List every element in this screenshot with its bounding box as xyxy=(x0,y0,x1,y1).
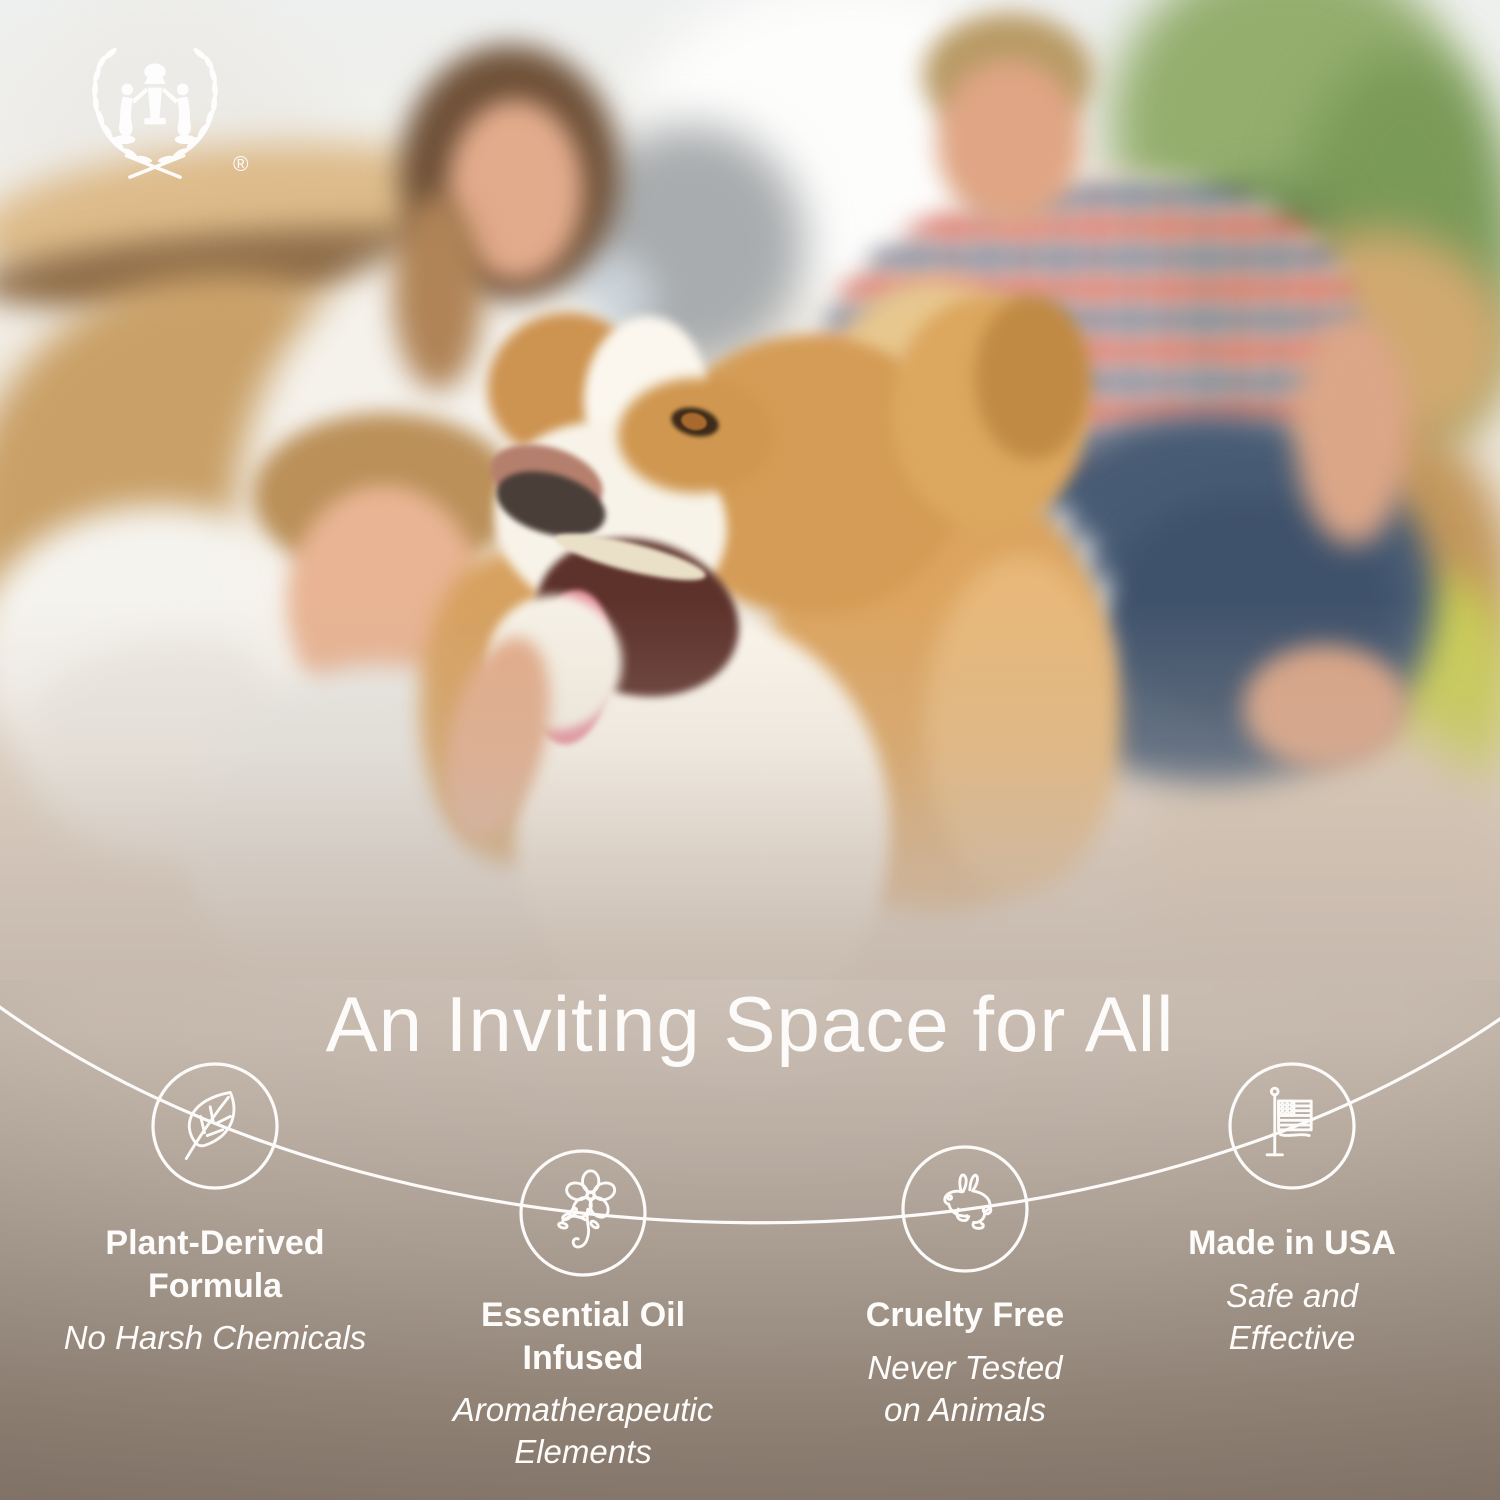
feature-subtitle: No Harsh Chemicals xyxy=(45,1317,385,1359)
mother-ponytail xyxy=(393,195,483,390)
feature-made-in-usa: Made in USA Safe and Effective xyxy=(1152,1222,1432,1359)
flower-icon xyxy=(537,1167,629,1259)
feature-subtitle: Never Tested on Animals xyxy=(850,1347,1080,1431)
rabbit-icon xyxy=(919,1163,1011,1255)
feature-cruelty-free: Cruelty Free Never Tested on Animals xyxy=(825,1294,1105,1431)
feature-subtitle: Safe and Effective xyxy=(1207,1275,1377,1359)
feature-title: Essential Oil Infused xyxy=(449,1294,717,1379)
headline: An Inviting Space for All xyxy=(0,985,1500,1063)
us-flag-icon xyxy=(1246,1080,1338,1172)
father-face xyxy=(937,60,1082,225)
feature-title: Cruelty Free xyxy=(825,1294,1105,1337)
dog-ear-tip xyxy=(975,295,1090,460)
leaf-icon xyxy=(169,1080,261,1172)
laurel-wreath-icon xyxy=(55,25,255,195)
feature-subtitle: Aromatherapeutic Elements xyxy=(433,1389,733,1473)
brand-logo: ® xyxy=(55,25,265,205)
father-arm xyxy=(1295,315,1410,545)
registered-trademark: ® xyxy=(233,153,248,177)
photo-fade-overlay xyxy=(0,600,1500,1030)
feature-plant-derived: Plant-Derived Formula No Harsh Chemicals xyxy=(45,1222,385,1359)
feature-title: Made in USA xyxy=(1152,1222,1432,1265)
product-banner: ® An Inviting Space for All xyxy=(0,0,1500,1500)
feature-essential-oil: Essential Oil Infused Aromatherapeutic E… xyxy=(433,1294,733,1473)
feature-title: Plant-Derived Formula xyxy=(79,1222,351,1307)
